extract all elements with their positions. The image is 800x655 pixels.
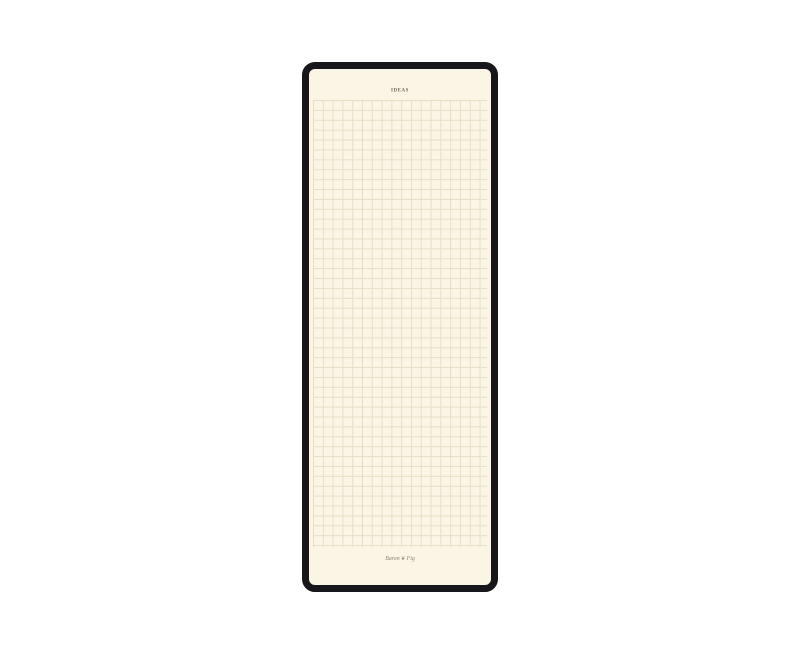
notepad-paper: IDEAS Baron❦Fig	[309, 69, 491, 585]
grid-notepad: IDEAS Baron❦Fig	[302, 62, 498, 592]
brand-ornament-icon: ❦	[401, 556, 405, 562]
page-background: IDEAS Baron❦Fig	[0, 0, 800, 655]
brand-logo: Baron❦Fig	[341, 555, 459, 562]
brand-word-left: Baron	[385, 555, 399, 562]
graph-grid	[313, 100, 487, 547]
brand-word-right: Fig	[407, 555, 415, 562]
notepad-title: IDEAS	[350, 87, 450, 93]
